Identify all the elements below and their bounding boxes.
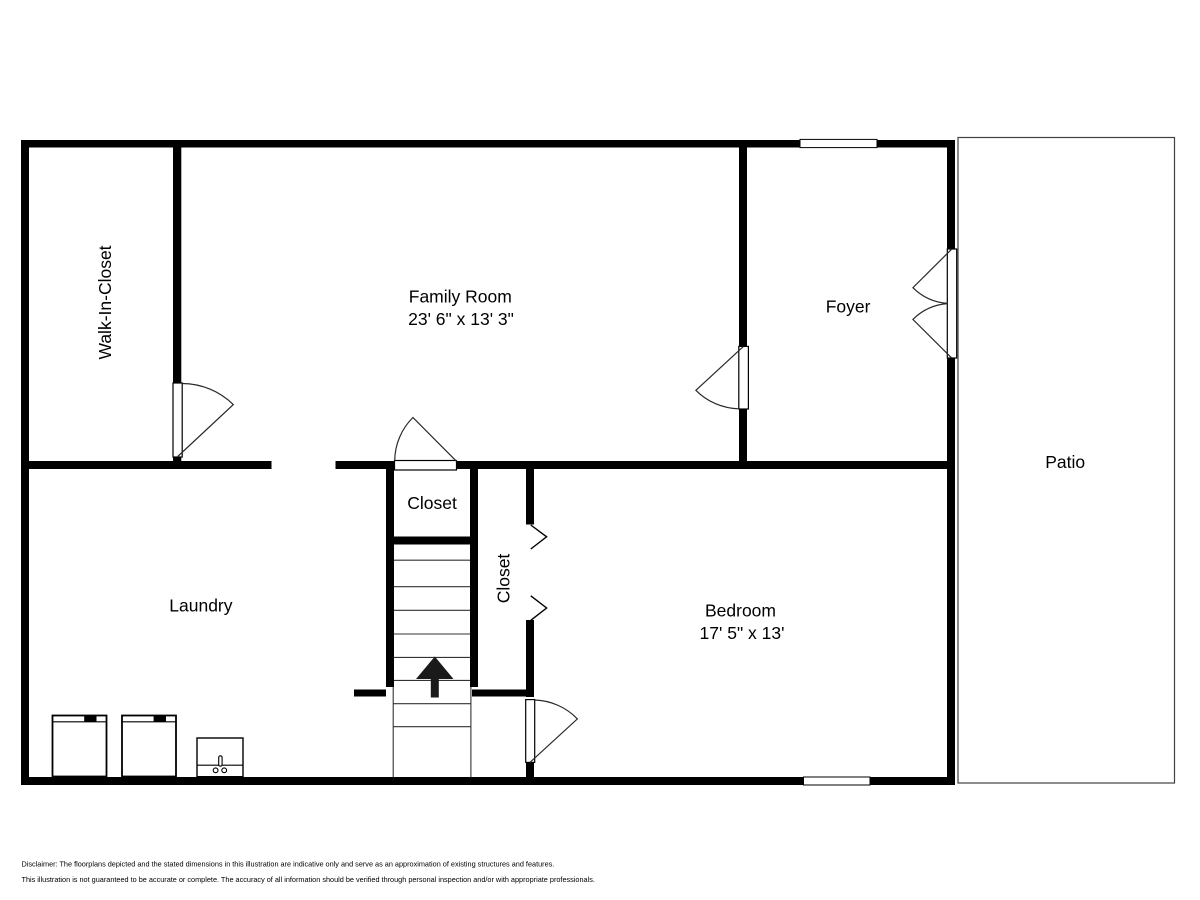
svg-text:23' 6" x 13' 3": 23' 6" x 13' 3": [408, 309, 514, 329]
svg-text:Closet: Closet: [493, 554, 513, 604]
svg-text:17' 5" x 13': 17' 5" x 13': [700, 623, 785, 643]
svg-text:Foyer: Foyer: [826, 297, 871, 317]
svg-text:Patio: Patio: [1045, 452, 1085, 472]
svg-text:Closet: Closet: [407, 493, 457, 513]
svg-text:This illustration is not guara: This illustration is not guaranteed to b…: [22, 875, 595, 884]
svg-text:Bedroom: Bedroom: [705, 600, 776, 620]
svg-text:Laundry: Laundry: [169, 595, 232, 615]
svg-text:Walk-In-Closet: Walk-In-Closet: [95, 245, 115, 359]
svg-text:Disclaimer: The floorplans dep: Disclaimer: The floorplans depicted and …: [22, 860, 555, 869]
svg-text:Family Room: Family Room: [409, 286, 512, 306]
